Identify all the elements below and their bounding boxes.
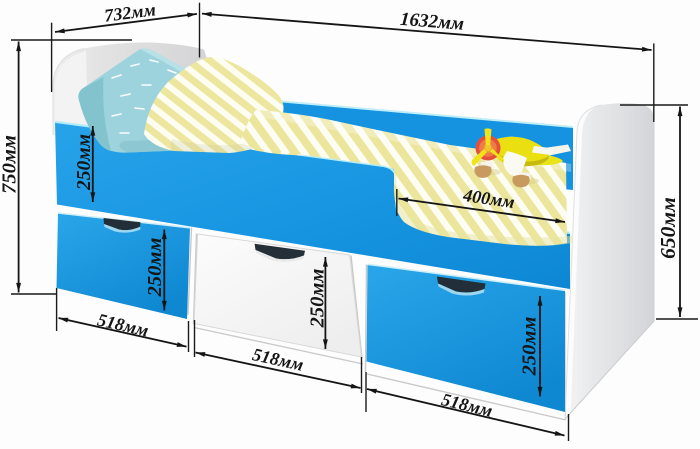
svg-text:250мм: 250мм	[307, 269, 329, 329]
svg-text:250мм: 250мм	[519, 317, 541, 377]
svg-text:750мм: 750мм	[0, 135, 21, 194]
svg-text:250мм: 250мм	[144, 238, 166, 298]
svg-text:650мм: 650мм	[656, 197, 680, 259]
svg-text:250мм: 250мм	[74, 134, 95, 191]
